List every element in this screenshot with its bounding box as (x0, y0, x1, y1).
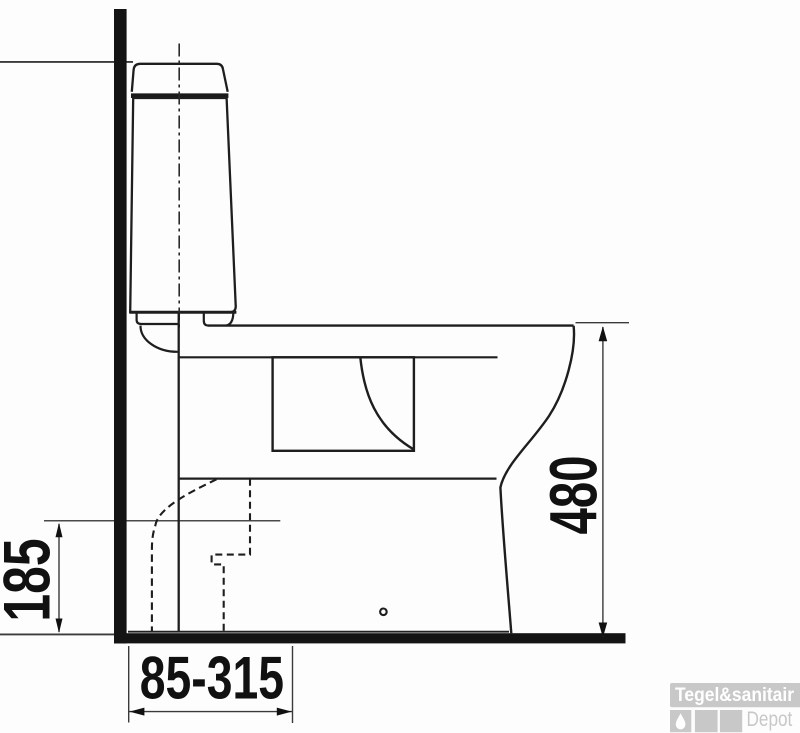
svg-text:185: 185 (0, 538, 64, 621)
svg-text:85-315: 85-315 (140, 645, 284, 712)
svg-text:Depot: Depot (747, 707, 793, 731)
svg-text:480: 480 (538, 455, 612, 534)
svg-text:Tegel&sanitair: Tegel&sanitair (675, 685, 795, 706)
